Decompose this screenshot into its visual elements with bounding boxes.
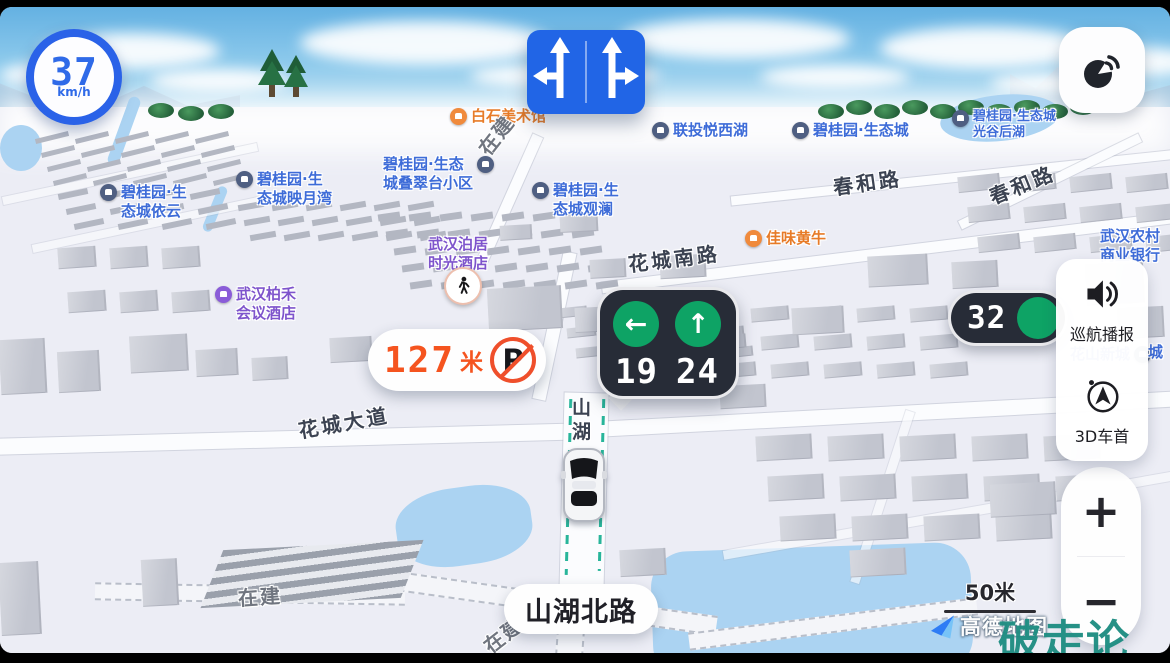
cruise-broadcast-button[interactable]: 巡航播报 (1056, 259, 1148, 360)
building (500, 224, 533, 241)
speed-badge: 37 km/h (26, 29, 122, 125)
speed-value: 37 (50, 55, 98, 89)
car-marker (560, 447, 608, 527)
bush (178, 106, 204, 121)
building (161, 246, 200, 270)
map-label: 在建 (237, 583, 283, 611)
building (989, 481, 1057, 517)
left-arrow-icon: ← (625, 309, 648, 340)
zoom-in-button[interactable]: + (1061, 467, 1141, 556)
building (200, 540, 423, 608)
map-label-text: 碧桂园·生态城依云 (121, 183, 187, 221)
tree-icon (256, 45, 312, 107)
map-label-text: 碧桂园·生态城 (813, 121, 909, 140)
poi-pin-icon (100, 184, 117, 201)
building (329, 336, 372, 363)
building (119, 290, 158, 314)
locate-button[interactable] (1059, 27, 1145, 113)
map-label-text: 武汉柏禾会议酒店 (236, 285, 296, 323)
straight-countdown: 24 (676, 352, 719, 392)
bush (148, 103, 174, 118)
poi-pin-icon (952, 110, 969, 127)
parking-distance-value: 127 (384, 340, 455, 381)
cloud (760, 65, 910, 89)
bush (902, 100, 928, 115)
lane-straight-right-icon (602, 37, 639, 98)
building (129, 334, 189, 374)
building (995, 514, 1052, 542)
heading-mode-button[interactable]: 3D车首 (1056, 360, 1148, 461)
parking-distance-badge: 127 米 P (368, 329, 546, 391)
speed-unit: km/h (57, 85, 90, 99)
poi-pin-icon (215, 286, 232, 303)
scale-label: 50米 (940, 577, 1040, 607)
cloud (620, 19, 850, 59)
nav-screen: 37 km/h (0, 0, 1170, 663)
straight-arrow-icon: ↑ (687, 309, 710, 340)
side-panel: 巡航播报 3D车首 (1056, 259, 1148, 461)
cloud (300, 21, 550, 65)
map-label: 山湖 (572, 397, 591, 445)
map-label: 碧桂园·生态城光谷后湖 (952, 109, 1056, 142)
compass-icon (1081, 374, 1123, 416)
building (1135, 203, 1170, 223)
map-label-text: 碧桂园·生态城叠翠台小区 (383, 155, 473, 193)
building (971, 434, 1028, 462)
building (590, 258, 627, 279)
straight-arrow-light: ↑ (675, 301, 721, 347)
poi-pin-icon (792, 122, 809, 139)
heading-mode-label: 3D车首 (1075, 423, 1130, 447)
map-label-text: 联投悦西湖 (673, 121, 748, 140)
poi-pin-icon (745, 230, 762, 247)
watermark: 破走论坛 (998, 607, 1170, 653)
bush (818, 104, 844, 119)
green-light-pill: 32 (948, 290, 1068, 346)
amap-logo-icon (930, 612, 957, 640)
map-label: 城 (1148, 343, 1163, 362)
bush (208, 104, 234, 119)
speaker-icon (1082, 274, 1122, 314)
map-label: 武汉柏禾会议酒店 (215, 285, 296, 323)
cruise-broadcast-label: 巡航播报 (1070, 321, 1134, 345)
map-viewport[interactable]: 37 km/h (0, 7, 1170, 653)
building (141, 558, 179, 607)
building (951, 260, 998, 289)
map-label-text: 碧桂园·生态城观澜 (553, 181, 619, 219)
map-label: 碧桂园·生态城 (792, 121, 909, 140)
building (109, 246, 148, 270)
map-label: 佳味黄牛 (745, 229, 826, 248)
building (923, 514, 980, 542)
building (827, 434, 884, 462)
map-label-text: 在建 (237, 583, 283, 611)
building (251, 356, 288, 381)
building (767, 474, 824, 502)
building (867, 253, 929, 287)
building (67, 290, 106, 314)
building (619, 548, 666, 577)
building (57, 350, 101, 393)
map-label: 联投悦西湖 (652, 121, 748, 140)
building (0, 561, 42, 636)
map-label-text: 碧桂园·生态城映月湾 (257, 170, 332, 208)
map-label: 碧桂园·生态城叠翠台小区 (383, 155, 494, 193)
poi-pin-icon (236, 171, 253, 188)
radar-icon (1079, 47, 1125, 93)
map-label-text: 碧桂园·生态城光谷后湖 (973, 109, 1056, 142)
distance-unit: 米 (460, 343, 483, 377)
map-label-text: 城 (1148, 343, 1163, 362)
green-countdown: 32 (967, 300, 1006, 336)
building (0, 338, 47, 395)
bush (846, 100, 872, 115)
building (57, 246, 96, 270)
building (839, 474, 896, 502)
building (755, 434, 812, 462)
lane-guidance-sign (527, 30, 645, 114)
poi-pin-icon (450, 108, 467, 125)
building (851, 514, 908, 542)
building (791, 306, 844, 336)
map-label: 碧桂园·生态城映月湾 (236, 170, 332, 208)
pedestrian-crossing-icon (444, 267, 482, 305)
no-parking-icon: P (490, 337, 536, 383)
building (899, 434, 956, 462)
building (171, 290, 210, 314)
map-label-text: 佳味黄牛 (766, 229, 826, 248)
building (849, 548, 906, 578)
map-label: 碧桂园·生态城观澜 (532, 181, 619, 219)
building (779, 514, 836, 542)
map-label-text: 山湖 (572, 397, 591, 445)
building (195, 348, 238, 377)
bush (874, 104, 900, 119)
poi-pin-icon (532, 182, 549, 199)
green-light-icon (1017, 297, 1059, 339)
building (911, 474, 968, 502)
lane-straight-left-icon (533, 37, 570, 98)
left-countdown: 19 (615, 352, 658, 392)
map-label: 碧桂园·生态城依云 (100, 183, 187, 221)
poi-pin-icon (652, 122, 669, 139)
building (487, 285, 563, 332)
current-road-name: 山湖北路 (525, 590, 637, 629)
left-arrow-light: ← (613, 301, 659, 347)
water (0, 125, 42, 171)
current-road-pill: 山湖北路 (504, 584, 658, 634)
traffic-light-panel: ← ↑ 19 24 (597, 287, 739, 399)
